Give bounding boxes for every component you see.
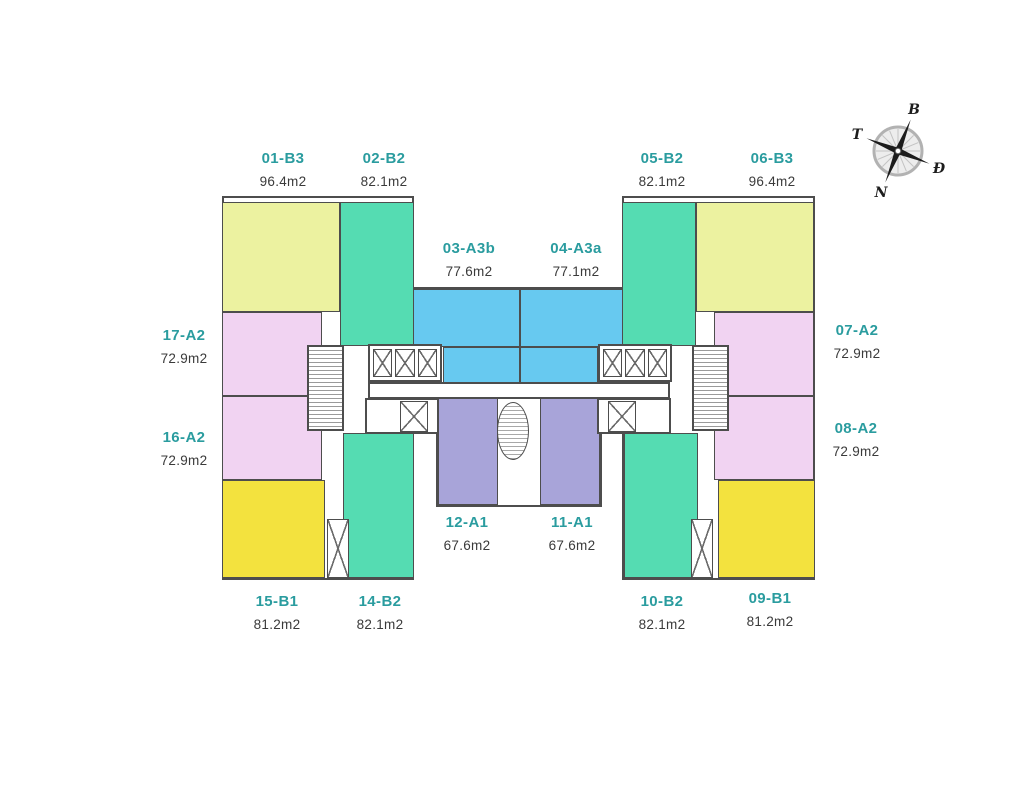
unit-area: 77.1m2: [550, 264, 602, 279]
unit-code: 11-A1: [549, 514, 596, 531]
unit-01-B3: [222, 202, 340, 312]
compass-rose: B T Đ N: [848, 96, 948, 204]
unit-09-B1: [718, 480, 815, 578]
unit-02-B2: [340, 202, 414, 346]
unit-label-17-A2: 17-A272.9m2: [161, 327, 208, 366]
unit-code: 07-A2: [834, 322, 881, 339]
unit-08-A2: [714, 396, 814, 480]
unit-area: 72.9m2: [834, 346, 881, 361]
unit-area: 82.1m2: [639, 617, 686, 632]
technical-shaft: [327, 519, 349, 578]
unit-code: 03-A3b: [443, 240, 495, 257]
elevator-cell: [648, 349, 667, 377]
unit-04-A3a: [520, 289, 628, 347]
stairwell: [307, 345, 344, 431]
unit-label-11-A1: 11-A167.6m2: [549, 514, 596, 553]
unit-area: 72.9m2: [161, 351, 208, 366]
unit-04-A3a: [520, 347, 598, 383]
unit-07-A2: [714, 312, 814, 396]
unit-label-05-B2: 05-B282.1m2: [639, 150, 686, 189]
elevator-cell: [418, 349, 437, 377]
spiral-stairwell: [497, 402, 529, 460]
unit-code: 04-A3a: [550, 240, 602, 257]
technical-shaft: [691, 519, 713, 578]
unit-label-10-B2: 10-B282.1m2: [639, 593, 686, 632]
unit-code: 05-B2: [639, 150, 686, 167]
unit-label-08-A2: 08-A272.9m2: [833, 420, 880, 459]
unit-label-01-B3: 01-B396.4m2: [260, 150, 307, 189]
unit-03-A3b: [443, 347, 520, 383]
unit-area: 72.9m2: [161, 453, 208, 468]
elevator-bank: [598, 344, 672, 382]
compass-hub: [895, 148, 901, 154]
unit-area: 81.2m2: [254, 617, 301, 632]
unit-label-09-B1: 09-B181.2m2: [747, 590, 794, 629]
service-elevator: [608, 401, 636, 432]
elevator-cell: [373, 349, 392, 377]
elevator-cell: [603, 349, 622, 377]
unit-area: 82.1m2: [639, 174, 686, 189]
floorplan-page: 01-B396.4m202-B282.1m203-A3b77.6m204-A3a…: [0, 0, 1024, 797]
unit-code: 06-B3: [749, 150, 796, 167]
service-elevator: [400, 401, 428, 432]
unit-code: 09-B1: [747, 590, 794, 607]
unit-14-B2: [343, 433, 414, 578]
stairwell: [692, 345, 729, 431]
unit-area: 81.2m2: [747, 614, 794, 629]
unit-area: 82.1m2: [361, 174, 408, 189]
elevator-cell: [395, 349, 414, 377]
elevator-cell: [625, 349, 644, 377]
unit-06-B3: [696, 202, 814, 312]
unit-area: 77.6m2: [443, 264, 495, 279]
unit-area: 67.6m2: [549, 538, 596, 553]
unit-code: 10-B2: [639, 593, 686, 610]
unit-area: 96.4m2: [749, 174, 796, 189]
compass-label-south: N: [874, 185, 889, 201]
unit-label-12-A1: 12-A167.6m2: [444, 514, 491, 553]
unit-code: 17-A2: [161, 327, 208, 344]
unit-label-06-B3: 06-B396.4m2: [749, 150, 796, 189]
unit-15-B1: [222, 480, 325, 578]
unit-code: 08-A2: [833, 420, 880, 437]
unit-area: 67.6m2: [444, 538, 491, 553]
unit-label-04-A3a: 04-A3a77.1m2: [550, 240, 602, 279]
unit-area: 96.4m2: [260, 174, 307, 189]
compass-label-west: T: [852, 127, 864, 143]
compass-dial: [854, 107, 943, 196]
unit-label-16-A2: 16-A272.9m2: [161, 429, 208, 468]
unit-03-A3b: [413, 289, 520, 347]
unit-code: 01-B3: [260, 150, 307, 167]
unit-05-B2: [622, 202, 696, 346]
compass-label-north: B: [907, 102, 920, 118]
unit-area: 72.9m2: [833, 444, 880, 459]
corridor: [368, 382, 670, 399]
unit-code: 02-B2: [361, 150, 408, 167]
unit-label-03-A3b: 03-A3b77.6m2: [443, 240, 495, 279]
unit-code: 15-B1: [254, 593, 301, 610]
unit-label-07-A2: 07-A272.9m2: [834, 322, 881, 361]
unit-10-B2: [624, 433, 698, 578]
unit-code: 14-B2: [357, 593, 404, 610]
unit-code: 16-A2: [161, 429, 208, 446]
unit-label-15-B1: 15-B181.2m2: [254, 593, 301, 632]
unit-code: 12-A1: [444, 514, 491, 531]
elevator-bank: [368, 344, 442, 382]
unit-12-A1: [438, 398, 498, 505]
compass-label-east: Đ: [932, 161, 946, 177]
unit-11-A1: [540, 398, 600, 505]
unit-label-14-B2: 14-B282.1m2: [357, 593, 404, 632]
unit-area: 82.1m2: [357, 617, 404, 632]
unit-label-02-B2: 02-B282.1m2: [361, 150, 408, 189]
